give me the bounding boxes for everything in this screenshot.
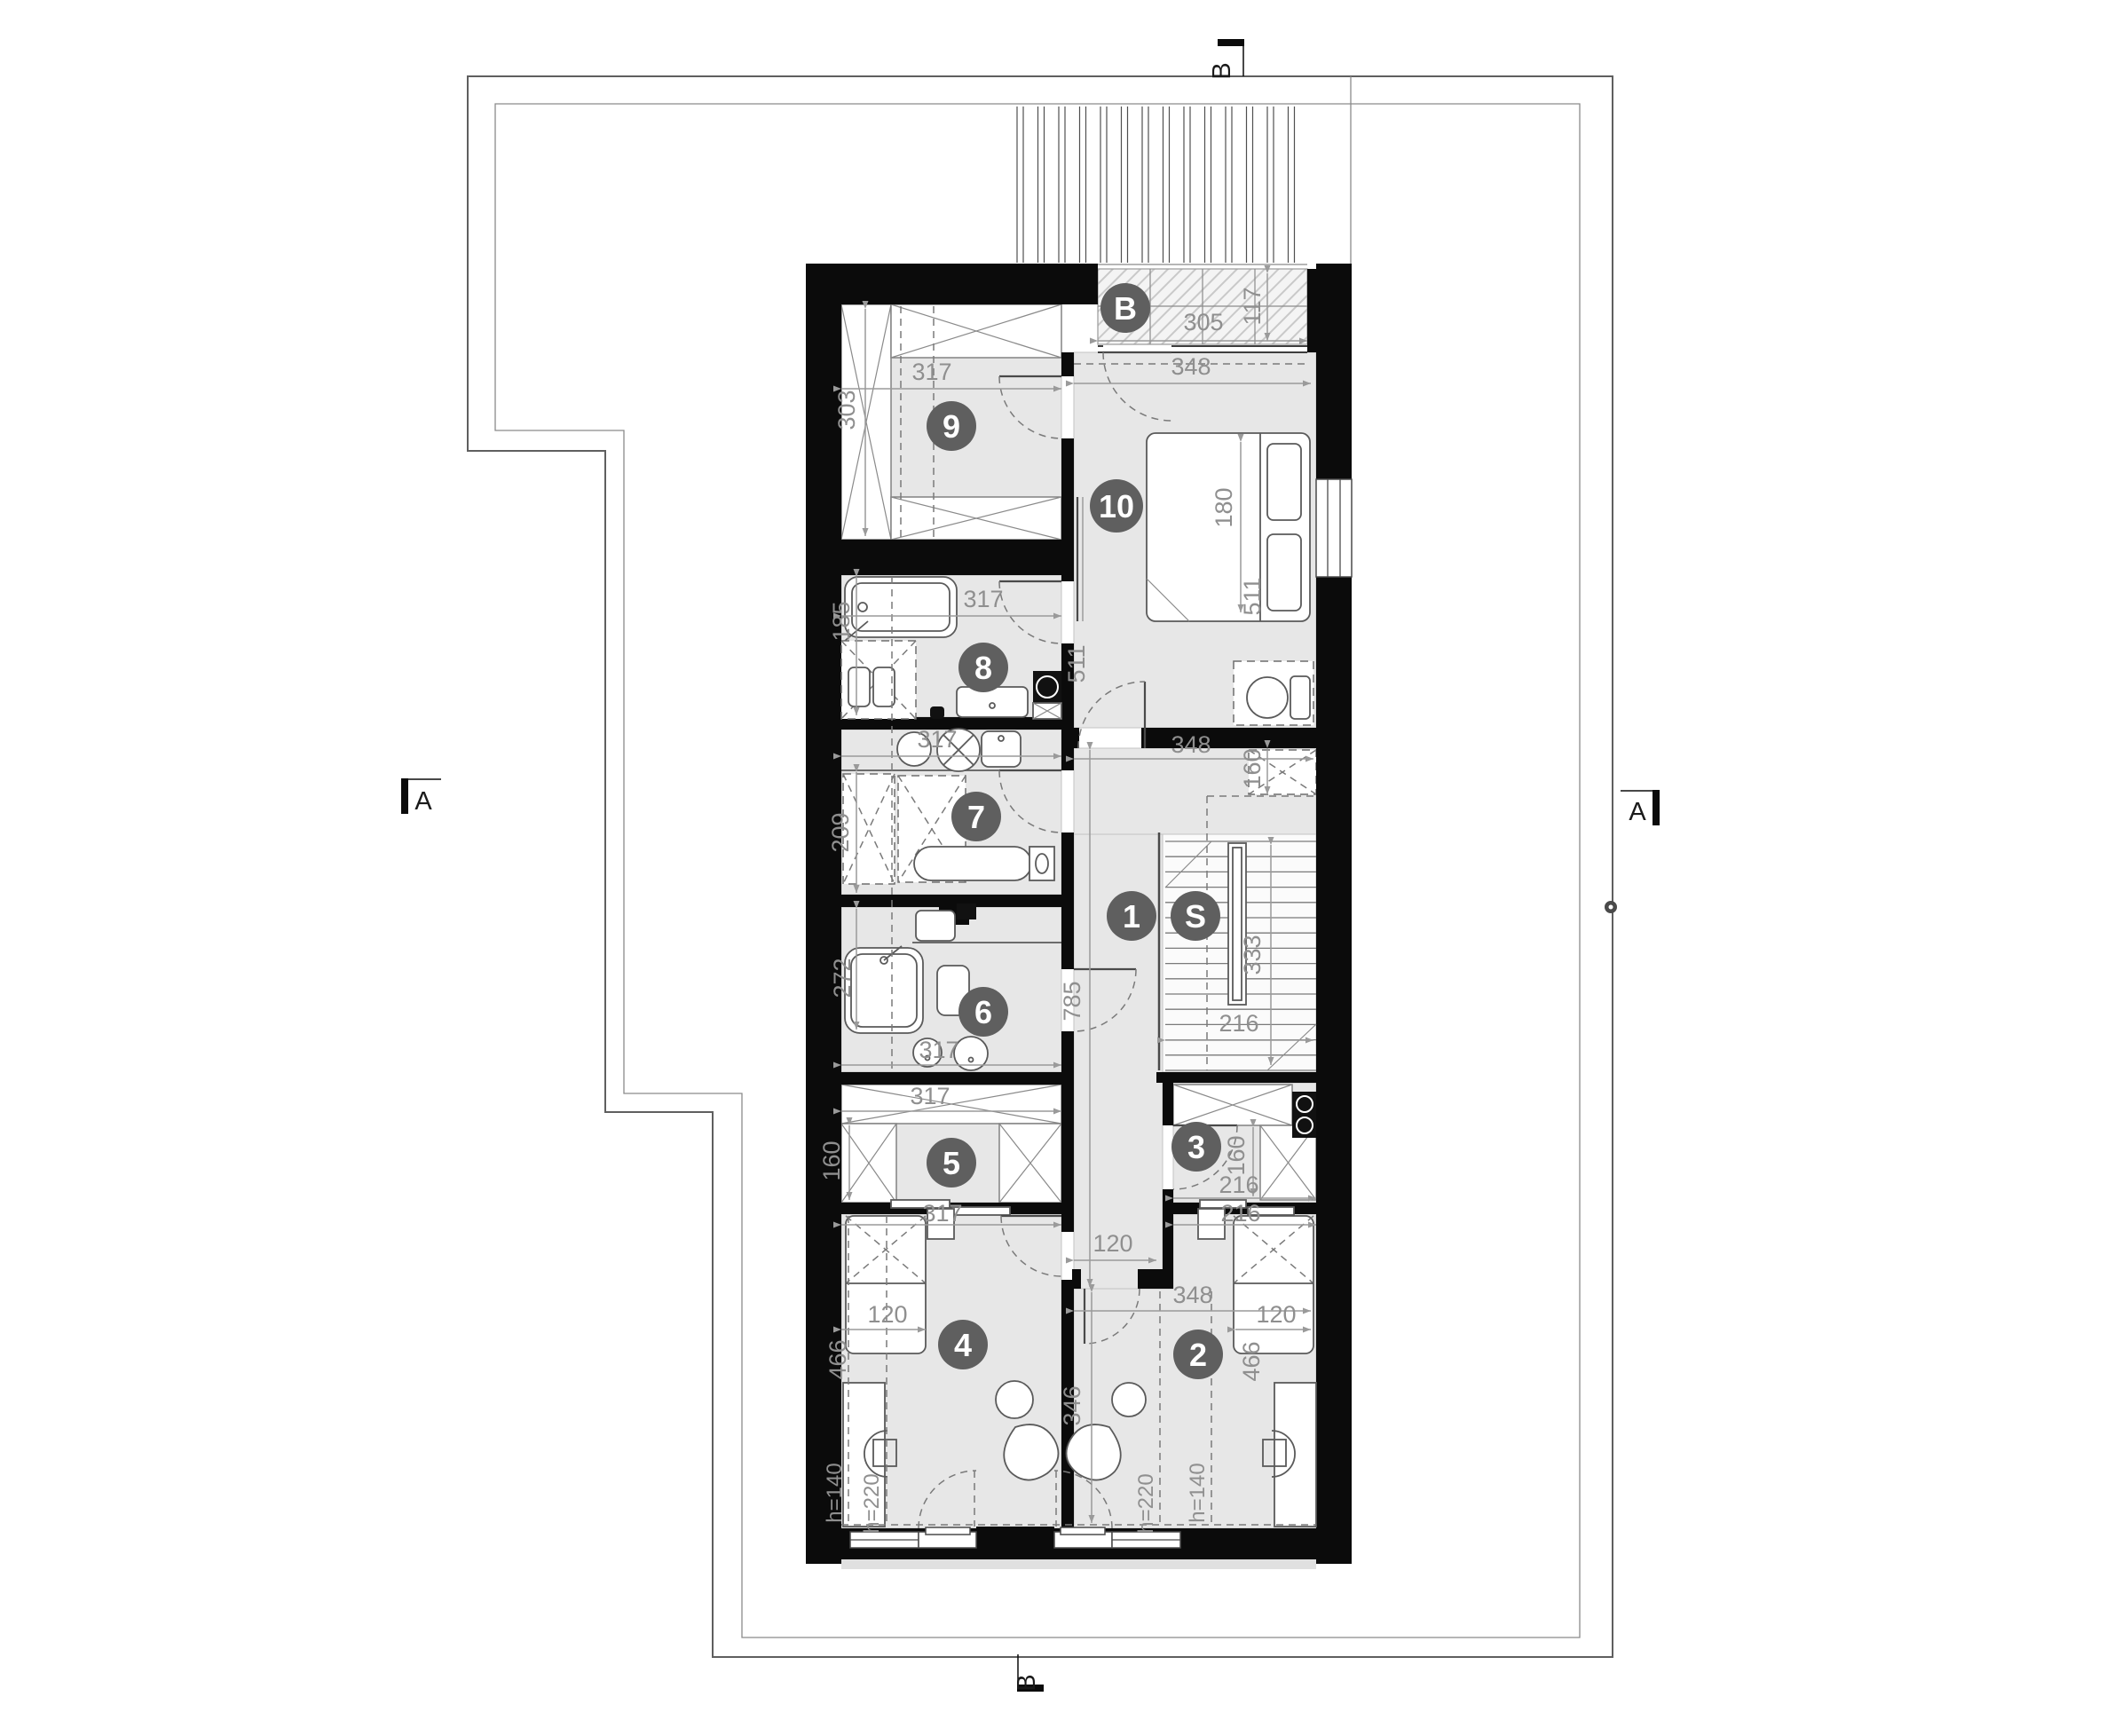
door-bottom-left	[919, 1527, 976, 1548]
svg-text:6: 6	[974, 994, 992, 1030]
toilet-room8	[848, 667, 870, 706]
door-bottom-right	[1054, 1527, 1112, 1548]
dim-room2-h220: h=220	[1134, 1473, 1158, 1533]
dim-room8-depth: 185	[828, 601, 855, 641]
dim-room4-h140: h=140	[823, 1463, 847, 1522]
room-badge-3: 3	[1171, 1122, 1221, 1172]
section-marker-a-right: A	[1621, 790, 1660, 826]
svg-text:S: S	[1185, 898, 1206, 935]
room-badge-4: 4	[938, 1320, 988, 1369]
bed-room4	[846, 1216, 926, 1353]
dim-room4-depth: 466	[824, 1339, 851, 1379]
dim-room9-width: 317	[911, 359, 951, 385]
dim-room4-h220: h=220	[860, 1473, 884, 1533]
wardrobe-room3-top	[1173, 1085, 1292, 1125]
dim-room3-depth: 160	[1223, 1135, 1250, 1175]
svg-text:10: 10	[1099, 488, 1134, 525]
section-marker-b-top: B	[1208, 39, 1244, 80]
hob-room3	[1292, 1092, 1316, 1138]
dim-room2-width: 348	[1172, 1282, 1212, 1308]
dim-room3-width-bottom: 216	[1220, 1200, 1260, 1227]
room-badge-2: 2	[1173, 1330, 1223, 1379]
svg-text:B: B	[1013, 1674, 1041, 1691]
svg-text:5: 5	[943, 1145, 960, 1181]
dim-room2-depth: 466	[1238, 1341, 1265, 1381]
room-badge-5: 5	[927, 1138, 976, 1188]
dim-corridor-length: 785	[1059, 981, 1085, 1021]
wardrobe-room5-top	[841, 1085, 1061, 1124]
dim-room4-bed: 120	[867, 1301, 907, 1328]
bidet-room8	[873, 667, 895, 706]
floor-plan-svg: 305 117 317 303 348 180 511 511 348 160 …	[0, 0, 2114, 1736]
svg-text:7: 7	[967, 799, 985, 835]
room-badge-1: 1	[1107, 891, 1156, 941]
room-badge-8: 8	[958, 643, 1008, 692]
dim-balcony-width: 305	[1183, 309, 1223, 335]
dim-room9-depth: 303	[833, 390, 860, 430]
dim-room7-width: 317	[917, 726, 957, 753]
dim-room7-depth: 209	[827, 812, 854, 852]
bathtub-room8	[845, 577, 957, 641]
dim-balcony-depth: 117	[1239, 287, 1266, 325]
room-badge-7: 7	[951, 792, 1001, 841]
window-sill-band	[841, 1559, 1316, 1569]
svg-text:9: 9	[943, 408, 960, 445]
dim-room6-depth: 272	[829, 958, 856, 998]
svg-text:1: 1	[1123, 898, 1140, 935]
chair-room4	[1004, 1424, 1058, 1480]
stove-room8	[1033, 671, 1061, 719]
section-marker-a-left: A	[401, 778, 441, 816]
stair-handrail	[1228, 843, 1246, 1005]
dim-stairs-width: 216	[1219, 1010, 1258, 1037]
dim-room5-width-bottom: 317	[922, 1200, 962, 1227]
svg-text:3: 3	[1187, 1129, 1205, 1165]
svg-text:A: A	[414, 787, 432, 816]
dim-room2-bed: 120	[1256, 1301, 1296, 1328]
dim-room5-depth: 160	[818, 1140, 845, 1180]
dim-closet-depth: 160	[1239, 748, 1266, 788]
room-badge-stairs: S	[1171, 891, 1220, 941]
bed-room2	[1234, 1216, 1313, 1353]
dim-corridor-width: 120	[1092, 1230, 1132, 1257]
dim-stairs-length: 333	[1239, 935, 1266, 975]
svg-text:8: 8	[974, 650, 992, 686]
dim-room2-length: 346	[1059, 1385, 1085, 1425]
window-room10-right	[1316, 479, 1352, 577]
room-badge-10: 10	[1090, 479, 1143, 533]
dim-room10-width: 348	[1171, 353, 1211, 380]
svg-text:2: 2	[1189, 1337, 1207, 1373]
room-badge-balcony: B	[1100, 283, 1150, 333]
wardrobe-room5-right	[999, 1124, 1061, 1203]
ironing-board-room7	[914, 847, 1054, 880]
pergola-slats	[1017, 107, 1295, 263]
dim-hall-width: 348	[1171, 731, 1211, 758]
window-bottom-left	[850, 1532, 919, 1548]
svg-text:A: A	[1629, 798, 1646, 826]
stool-room2	[1112, 1383, 1146, 1416]
sink-room7	[982, 731, 1021, 767]
dim-room10-d2: 511	[1239, 577, 1266, 615]
drain-room8	[930, 706, 944, 719]
window-bottom-right	[1112, 1532, 1180, 1548]
floor-plan-page: 305 117 317 303 348 180 511 511 348 160 …	[0, 0, 2114, 1736]
room-badge-9: 9	[927, 401, 976, 451]
dim-room10-d1: 511	[1063, 644, 1090, 683]
wall-right	[1316, 264, 1352, 1564]
dim-room8-width: 317	[963, 586, 1003, 612]
dim-room5-width-top: 317	[910, 1083, 950, 1109]
svg-text:B: B	[1114, 290, 1137, 327]
room-badge-6: 6	[958, 987, 1008, 1037]
dim-room10-bed: 180	[1211, 487, 1237, 527]
washer-room8	[957, 687, 1028, 717]
section-marker-b-bottom: B	[1013, 1654, 1044, 1692]
wall-bottom-pier	[976, 1527, 1054, 1559]
wall-top	[841, 264, 1098, 304]
svg-text:B: B	[1208, 62, 1236, 79]
chair-room2	[1067, 1424, 1121, 1480]
dim-room6-width: 317	[919, 1037, 958, 1063]
svg-text:4: 4	[954, 1327, 972, 1363]
stool-room4	[996, 1381, 1033, 1418]
dim-room2-h140: h=140	[1186, 1463, 1210, 1522]
wardrobe-room9-bottom	[891, 497, 1061, 540]
wardrobe-room9-top	[891, 304, 1061, 358]
toilet-room10	[1234, 661, 1313, 725]
